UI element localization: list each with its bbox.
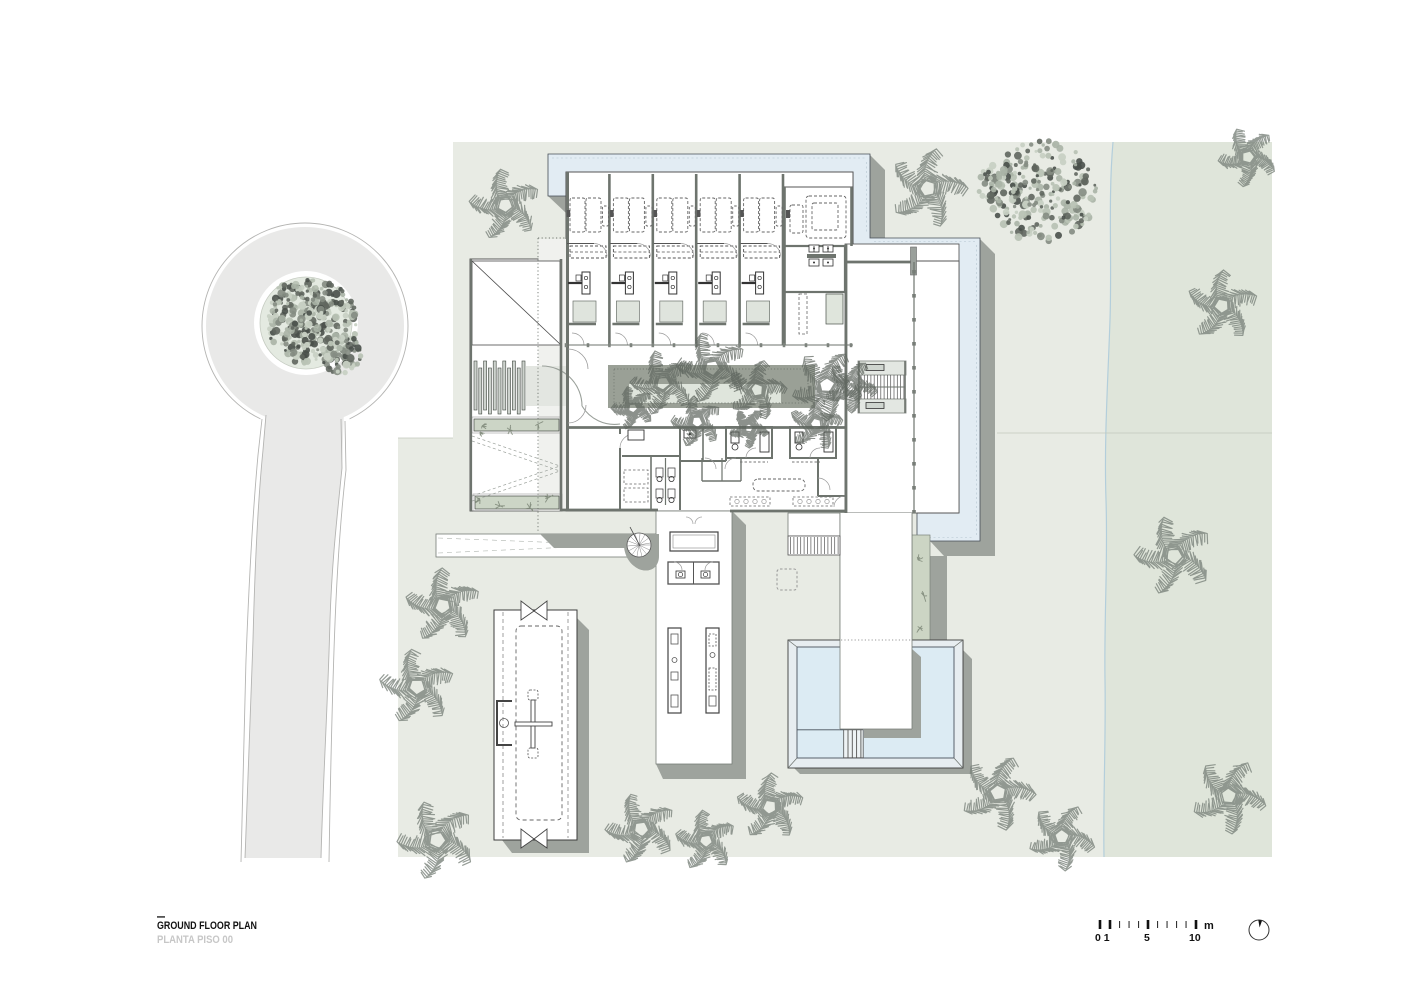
svg-text:PLANTA PISO 00: PLANTA PISO 00: [157, 934, 233, 946]
svg-text:GROUND FLOOR PLAN: GROUND FLOOR PLAN: [157, 920, 257, 932]
svg-text:m: m: [1204, 920, 1214, 932]
svg-text:10: 10: [1189, 932, 1201, 944]
svg-text:5: 5: [1144, 932, 1150, 944]
svg-text:0 1: 0 1: [1095, 932, 1110, 944]
